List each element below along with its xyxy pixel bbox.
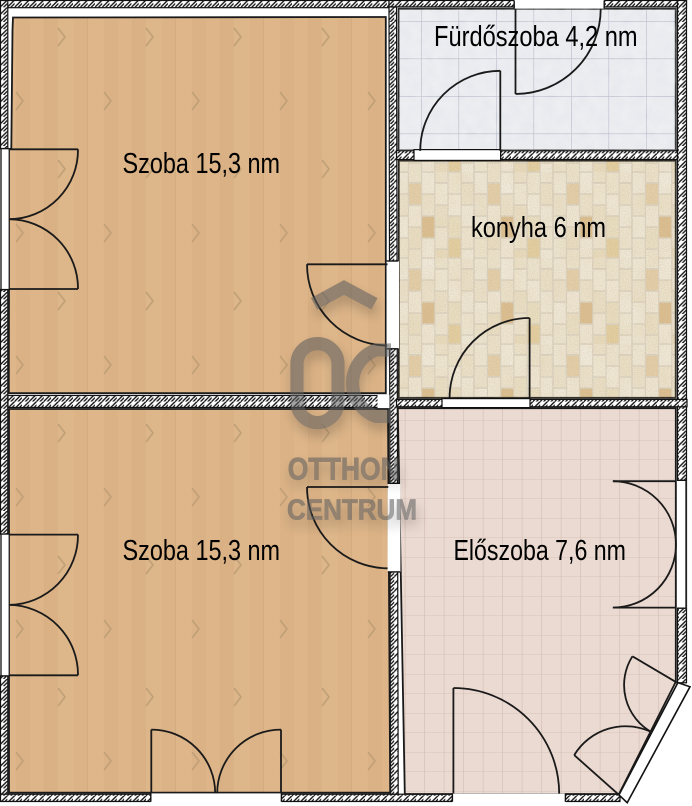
svg-text:CENTRUM: CENTRUM: [287, 494, 417, 526]
svg-text:OTTHON: OTTHON: [288, 451, 400, 487]
svg-text:Szoba 15,3 nm: Szoba 15,3 nm: [123, 148, 281, 180]
svg-text:konyha 6 nm: konyha 6 nm: [471, 212, 606, 244]
svg-text:Szoba 15,3 nm: Szoba 15,3 nm: [123, 535, 281, 567]
svg-text:Fürdőszoba 4,2 nm: Fürdőszoba 4,2 nm: [434, 21, 638, 53]
svg-text:Előszoba 7,6 nm: Előszoba 7,6 nm: [453, 535, 626, 567]
